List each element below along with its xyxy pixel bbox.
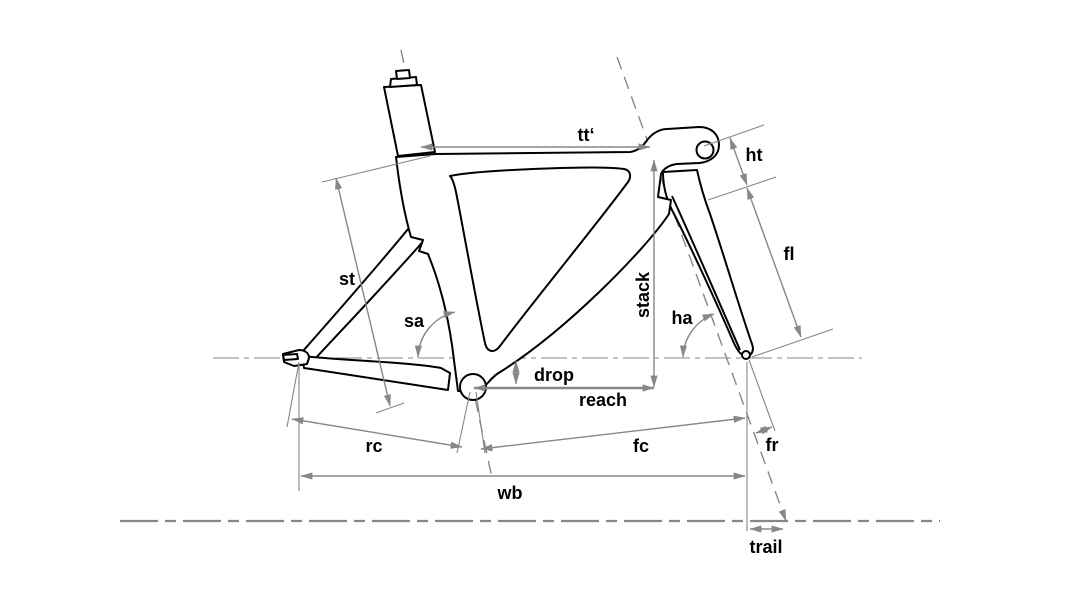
seatpost (384, 85, 435, 156)
dim-front-center-line (481, 418, 745, 449)
dim-head-tube-line (730, 138, 747, 185)
chain-stay (302, 356, 450, 390)
label-seat-tube: st (339, 269, 355, 289)
diagram-canvas: tt‘ ht fl st sa stack ha drop reach rc f… (0, 0, 1067, 600)
dim-fork-rake-parallel-line (749, 360, 775, 431)
label-head-tube: ht (746, 145, 763, 165)
label-trail: trail (749, 537, 782, 557)
dim-front-center-ext-bb (476, 392, 485, 453)
dim-rear-center-ext (287, 362, 299, 427)
fork-outline (663, 170, 753, 356)
frame-geometry-diagram: tt‘ ht fl st sa stack ha drop reach rc f… (0, 0, 1067, 600)
label-top-tube: tt‘ (578, 125, 595, 145)
label-wheelbase: wb (497, 483, 523, 503)
label-head-angle: ha (671, 308, 693, 328)
dim-fork-rake-line (756, 427, 772, 433)
label-stack: stack (633, 271, 653, 318)
dim-fork-length-ext-bottom (752, 329, 833, 357)
rear-dropout-slot (283, 354, 298, 360)
label-drop: drop (534, 365, 574, 385)
label-front-center: fc (633, 436, 649, 456)
dim-head-tube-ext-bottom (708, 177, 776, 200)
label-seat-angle: sa (404, 311, 425, 331)
dim-rear-center-ext-bb (457, 392, 470, 453)
label-fork-rake: fr (766, 435, 779, 455)
front-dropout (742, 351, 750, 359)
label-reach: reach (579, 390, 627, 410)
label-rear-center: rc (365, 436, 382, 456)
seatpost-clamp-bolt (396, 70, 410, 79)
seat-stay (303, 223, 427, 361)
label-fork-length: fl (784, 244, 795, 264)
